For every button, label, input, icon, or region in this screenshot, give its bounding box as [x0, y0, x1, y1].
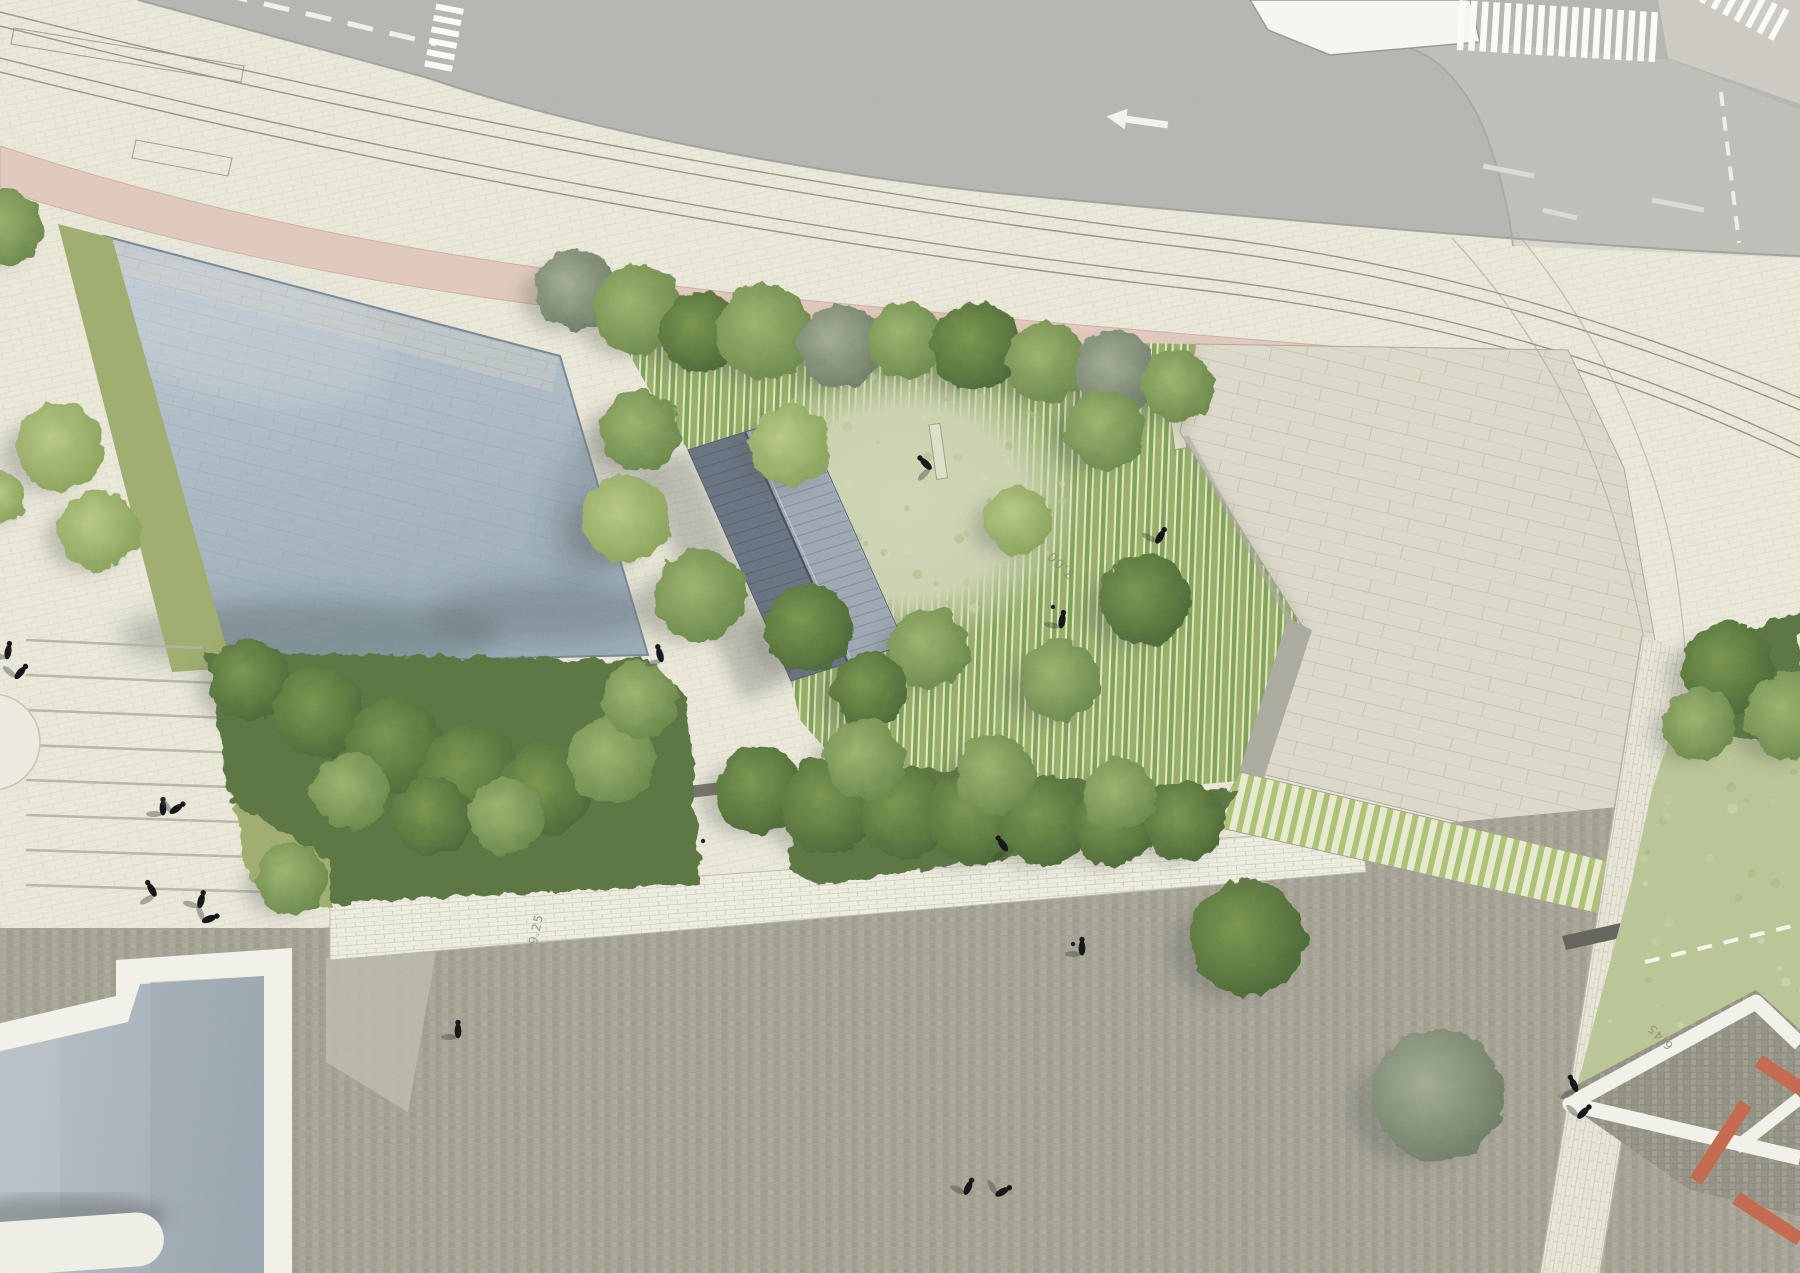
small-figure-dot [701, 839, 705, 843]
site-plan-canvas: 7.009.256.45 [0, 0, 1800, 1273]
small-figure-dot [1051, 605, 1055, 609]
paper-grain [0, 0, 1800, 1273]
small-figure-dot [1071, 942, 1075, 946]
